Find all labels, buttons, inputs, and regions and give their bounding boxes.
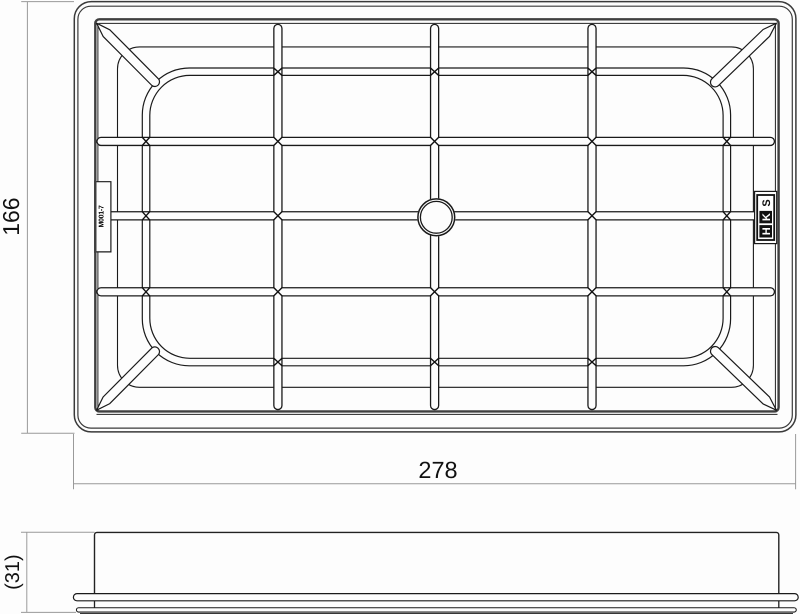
svg-text:K: K xyxy=(761,213,773,221)
svg-text:M001-7: M001-7 xyxy=(99,205,106,227)
svg-text:278: 278 xyxy=(418,457,457,483)
svg-text:S: S xyxy=(761,199,773,206)
svg-text:H: H xyxy=(761,227,773,235)
svg-text:(31): (31) xyxy=(2,554,24,590)
svg-text:166: 166 xyxy=(0,197,24,235)
